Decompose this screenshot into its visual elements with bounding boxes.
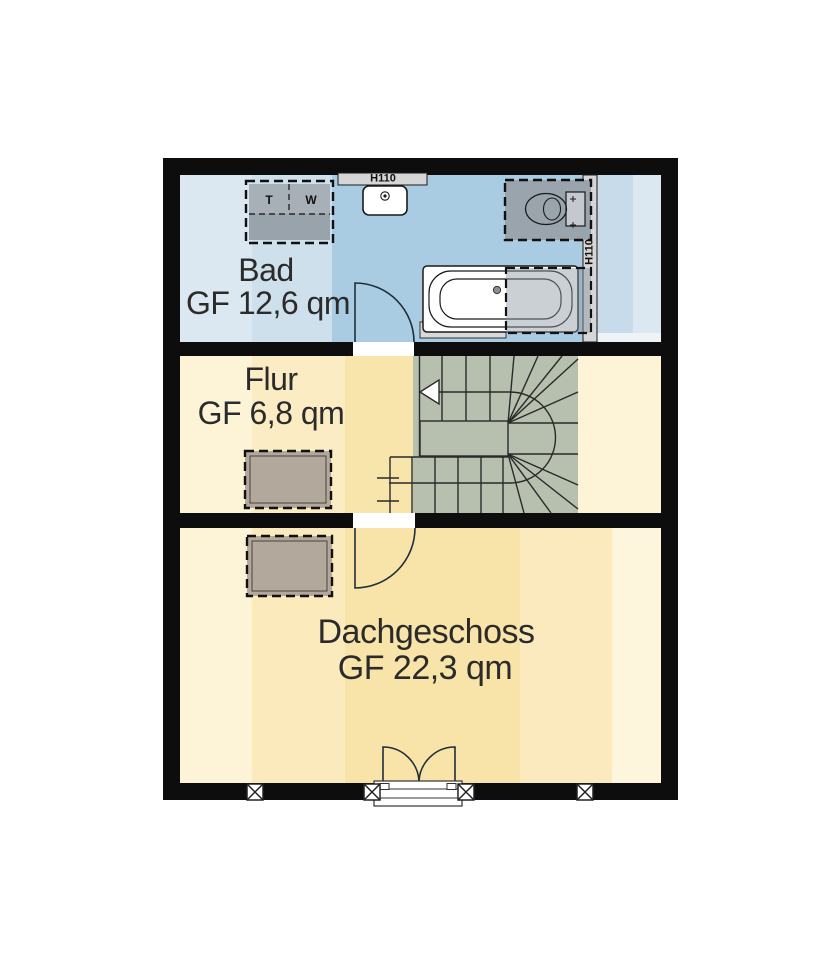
window-post-icon — [364, 784, 380, 800]
knee-wall-right-label: H110 — [585, 239, 596, 265]
bad-room-name: Bad — [238, 254, 293, 286]
bathtub — [420, 266, 591, 338]
washer-dryer-unit — [246, 181, 333, 243]
toilet — [505, 180, 591, 240]
bad-door-opening — [353, 342, 414, 356]
dachgeschoss-cabinet — [247, 536, 332, 596]
flur-cabinet — [245, 451, 331, 508]
toilet-cistern — [566, 192, 585, 226]
washer-label: W — [305, 194, 316, 206]
dachgeschoss-room-name: Dachgeschoss — [317, 615, 534, 649]
window-post-icon — [577, 784, 593, 800]
sink — [363, 186, 407, 215]
dryer-label: T — [265, 194, 272, 206]
tub-drain-icon — [493, 286, 500, 293]
balcony-door-sill — [374, 781, 462, 806]
dachgeschoss-room-area: GF 22,3 qm — [338, 651, 513, 685]
flur-room-area: GF 6,8 qm — [198, 397, 345, 429]
floor-plan-canvas: Bad GF 12,6 qm Flur GF 6,8 qm Dachgescho… — [0, 0, 836, 960]
knee-wall-top-label: H110 — [370, 174, 396, 185]
roof-slope-overlay — [506, 268, 591, 333]
floor-plan-drawing — [0, 0, 836, 960]
window-post-icon — [458, 784, 474, 800]
dachgeschoss-door-opening — [353, 513, 415, 528]
flur-room-name: Flur — [244, 363, 297, 395]
bad-room-area: GF 12,6 qm — [186, 287, 350, 319]
window-post-icon — [247, 784, 263, 800]
